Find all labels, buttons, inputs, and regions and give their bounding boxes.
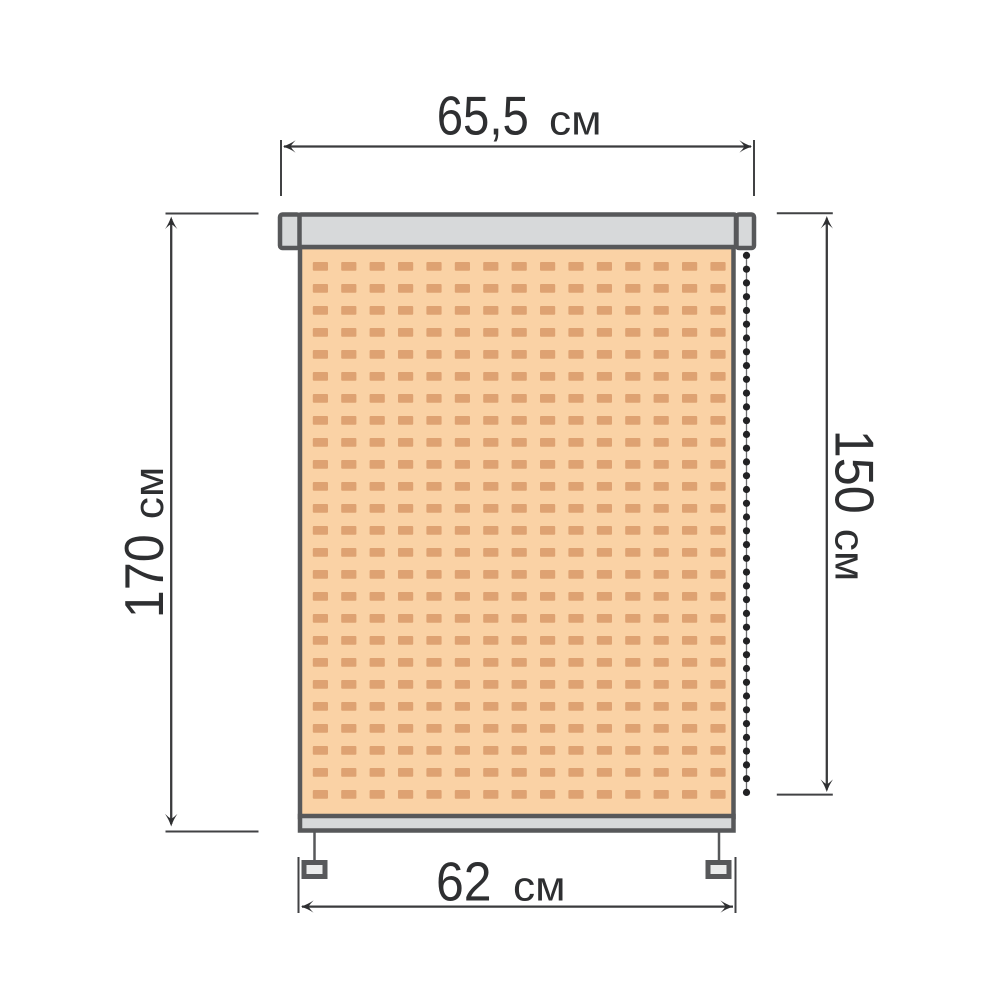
svg-text:см: см [549, 96, 602, 143]
svg-text:150: 150 [823, 430, 885, 514]
svg-text:см: см [513, 863, 566, 910]
svg-text:170: 170 [113, 534, 175, 618]
svg-text:65,5: 65,5 [437, 84, 529, 146]
svg-text:см: см [125, 467, 172, 520]
svg-text:см: см [826, 529, 873, 582]
svg-text:62: 62 [436, 851, 492, 913]
